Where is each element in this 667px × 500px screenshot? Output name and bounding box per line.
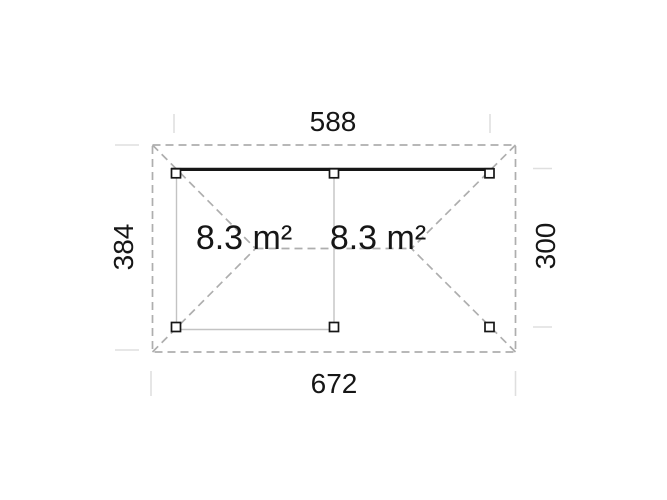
post-bottom-left [172, 323, 181, 332]
dim-left-label: 384 [108, 224, 139, 271]
post-bottom-right [485, 323, 494, 332]
hip-line-bottom-left [153, 249, 256, 353]
post-top-middle [330, 169, 339, 178]
area-label-right: 8.3 m² [330, 219, 426, 257]
area-label-left: 8.3 m² [196, 219, 292, 257]
hip-line-top-right [412, 145, 516, 249]
hip-line-bottom-right [412, 249, 516, 353]
dim-bottom-label: 672 [311, 368, 358, 399]
dim-right-label: 300 [530, 223, 561, 270]
dim-top-label: 588 [310, 106, 357, 137]
post-bottom-middle [330, 323, 339, 332]
post-top-right [485, 169, 494, 178]
post-top-left [172, 169, 181, 178]
floor-plan-drawing: 588 672 384 300 8.3 m² 8.3 m² [0, 0, 667, 500]
